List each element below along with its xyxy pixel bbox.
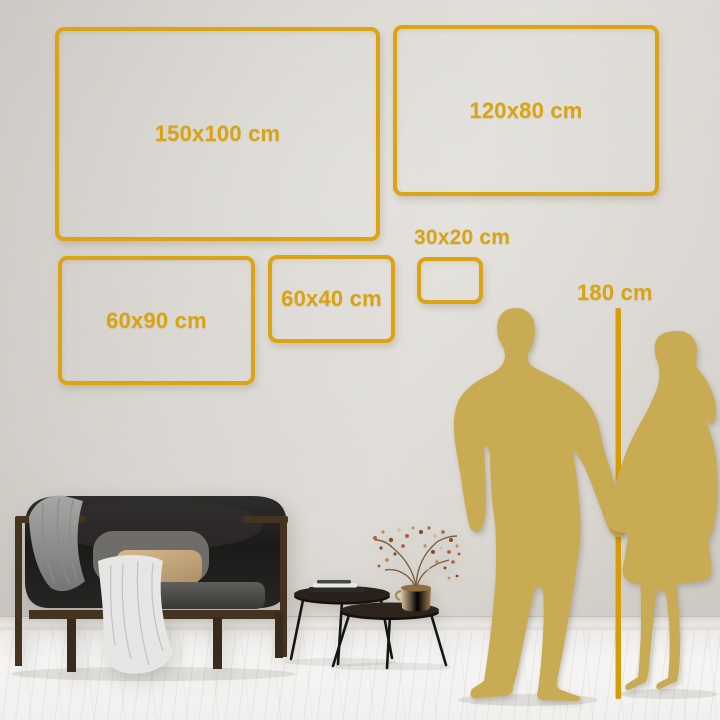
frame-label-60x40: 60x40 cm bbox=[281, 286, 382, 312]
size-guide-stage: 150x100 cm 120x80 cm 60x90 cm 60x40 cm 3… bbox=[0, 0, 720, 720]
frame-120x80: 120x80 cm bbox=[393, 25, 659, 196]
man-silhouette bbox=[454, 308, 625, 701]
woman-floor-shadow bbox=[618, 689, 718, 699]
frame-30x20 bbox=[417, 257, 483, 304]
sofa bbox=[3, 483, 303, 683]
books bbox=[309, 580, 365, 592]
couple-silhouette bbox=[440, 300, 720, 710]
frame-label-30x20: 30x20 cm bbox=[414, 226, 510, 250]
frame-label-60x90: 60x90 cm bbox=[106, 308, 207, 334]
frame-label-120x80: 120x80 cm bbox=[469, 98, 582, 124]
frame-60x90: 60x90 cm bbox=[58, 256, 255, 385]
frame-label-150x100: 150x100 cm bbox=[155, 121, 281, 147]
sofa-seat-cushion bbox=[153, 582, 265, 609]
frame-150x100: 150x100 cm bbox=[55, 27, 380, 241]
woman-silhouette bbox=[605, 331, 718, 690]
frame-60x40: 60x40 cm bbox=[268, 255, 395, 343]
